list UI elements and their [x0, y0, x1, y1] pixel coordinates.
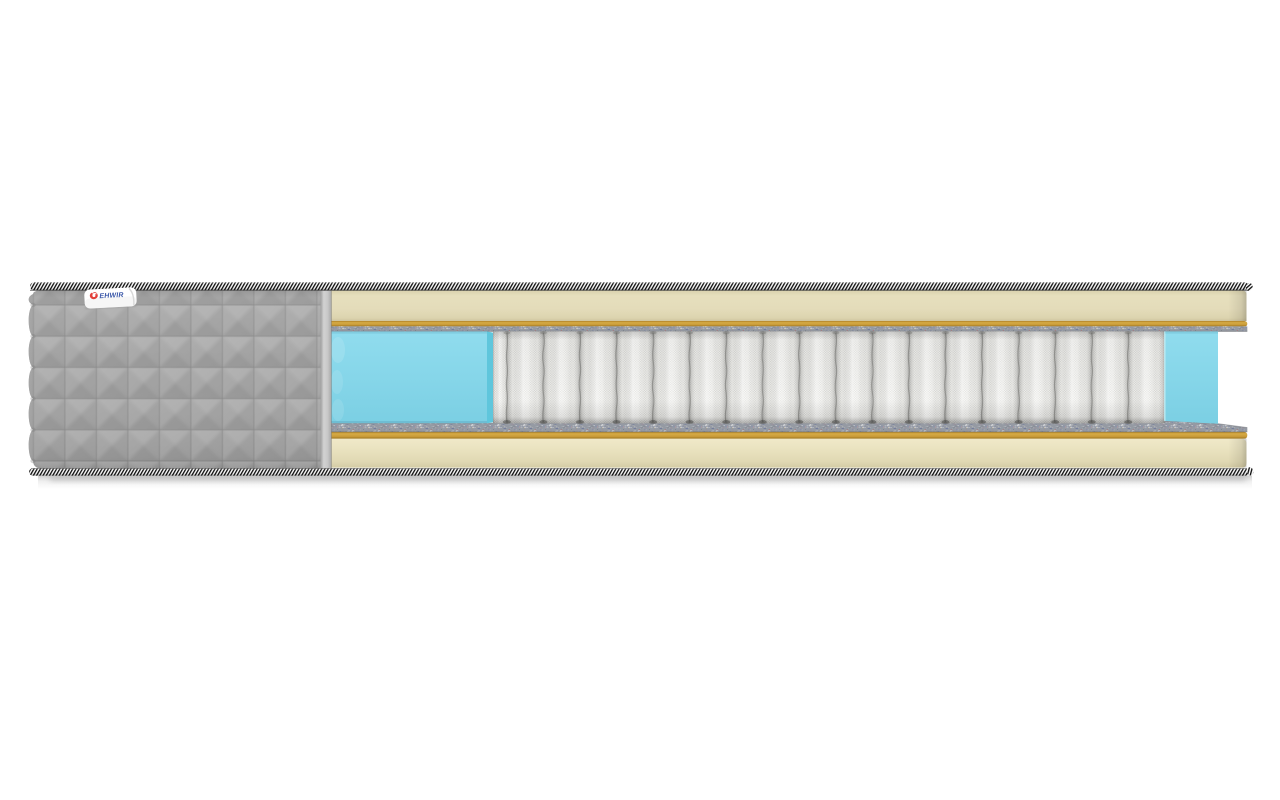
svg-text:EHWIR: EHWIR — [99, 292, 124, 300]
